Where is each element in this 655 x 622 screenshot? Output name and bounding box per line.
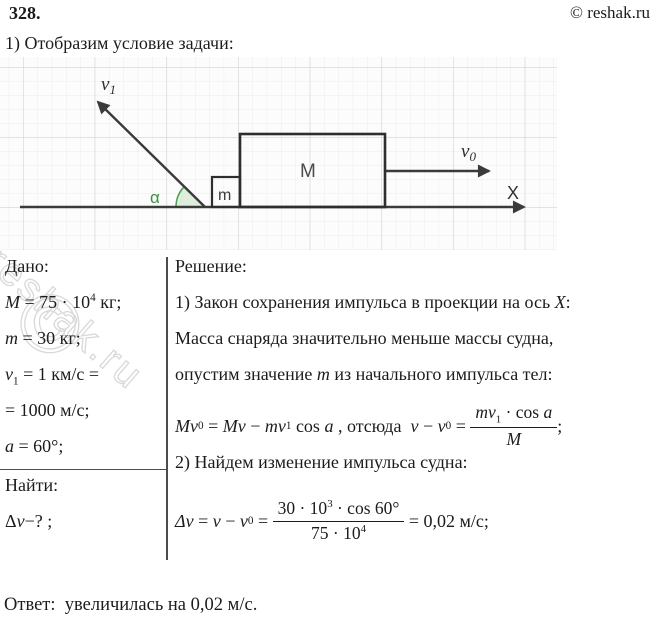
fraction-2-denominator: 75 · 104 (273, 522, 405, 544)
small-mass-label: m (218, 187, 231, 204)
alpha-angle-label: α (150, 188, 160, 207)
find-title: Найти: (5, 475, 163, 511)
solution-note2: опустим значение m из начального импульс… (175, 364, 653, 400)
solution-step1: 1) Закон сохранения импульса в проекции … (175, 292, 653, 328)
solution-page: 328. © reshak.ru 1) Отобразим условие за… (0, 0, 655, 622)
fraction-1: mv1 · cos a M (470, 402, 557, 451)
solution-note1: Масса снаряда значительно меньше массы с… (175, 328, 653, 364)
given-line-v1-cont: = 1000 м/с; (5, 400, 163, 436)
given-title: Дано: (5, 256, 163, 292)
copyright-note: © reshak.ru (570, 3, 650, 23)
x-axis-label: X (507, 183, 519, 203)
column-divider (166, 257, 168, 560)
fraction-1-denominator: M (470, 428, 557, 450)
solution-step2: 2) Найдем изменение импульса судна: (175, 452, 653, 488)
given-section: Дано: M = 75 · 104 кг; m = 30 кг; v1 = 1… (5, 256, 163, 547)
solution-title: Решение: (175, 256, 653, 292)
problem-number: 328. (9, 3, 41, 24)
large-mass-label: M (300, 161, 316, 182)
answer-line: Ответ: увеличилась на 0,02 м/с. (4, 595, 257, 616)
formula-momentum-conservation: Mv0 = Mv − mv1 cos a , отсюда v − v0 = m… (175, 400, 653, 452)
fraction-1-numerator: mv1 · cos a (470, 402, 557, 429)
solution-section: Решение: 1) Закон сохранения импульса в … (175, 256, 653, 552)
intro-line: 1) Отобразим условие задачи: (5, 33, 234, 54)
fraction-2: 30 · 103 · cos 60° 75 · 104 (273, 498, 405, 544)
given-line-M: M = 75 · 104 кг; (5, 292, 163, 328)
given-line-v1: v1 = 1 км/с = (5, 364, 163, 400)
given-line-m: m = 30 кг; (5, 328, 163, 364)
fraction-2-numerator: 30 · 103 · cos 60° (273, 498, 405, 522)
given-find-divider (0, 469, 166, 470)
find-expression: Δv−? ; (5, 511, 163, 547)
given-line-alpha: a = 60°; (5, 436, 163, 472)
formula-velocity-change: Δv = v − v0 = 30 · 103 · cos 60° 75 · 10… (175, 490, 653, 552)
physics-diagram: v1 v0 α m M X (0, 57, 557, 250)
